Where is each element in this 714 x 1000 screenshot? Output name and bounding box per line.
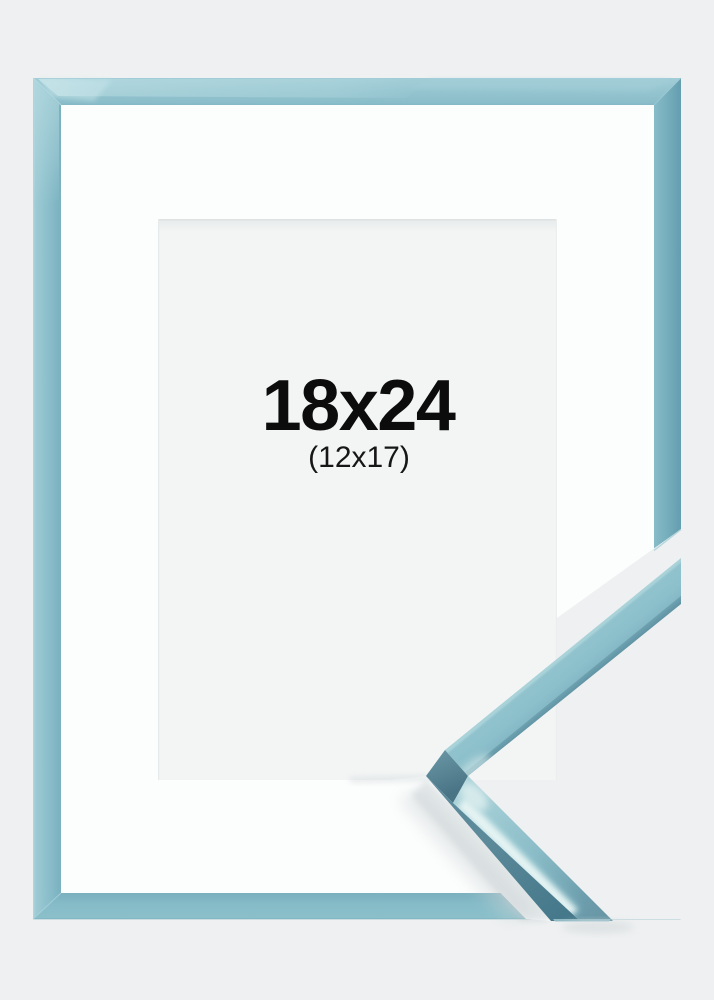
svg-text:(12x17): (12x17): [308, 441, 410, 474]
svg-text:18x24: 18x24: [262, 366, 456, 446]
